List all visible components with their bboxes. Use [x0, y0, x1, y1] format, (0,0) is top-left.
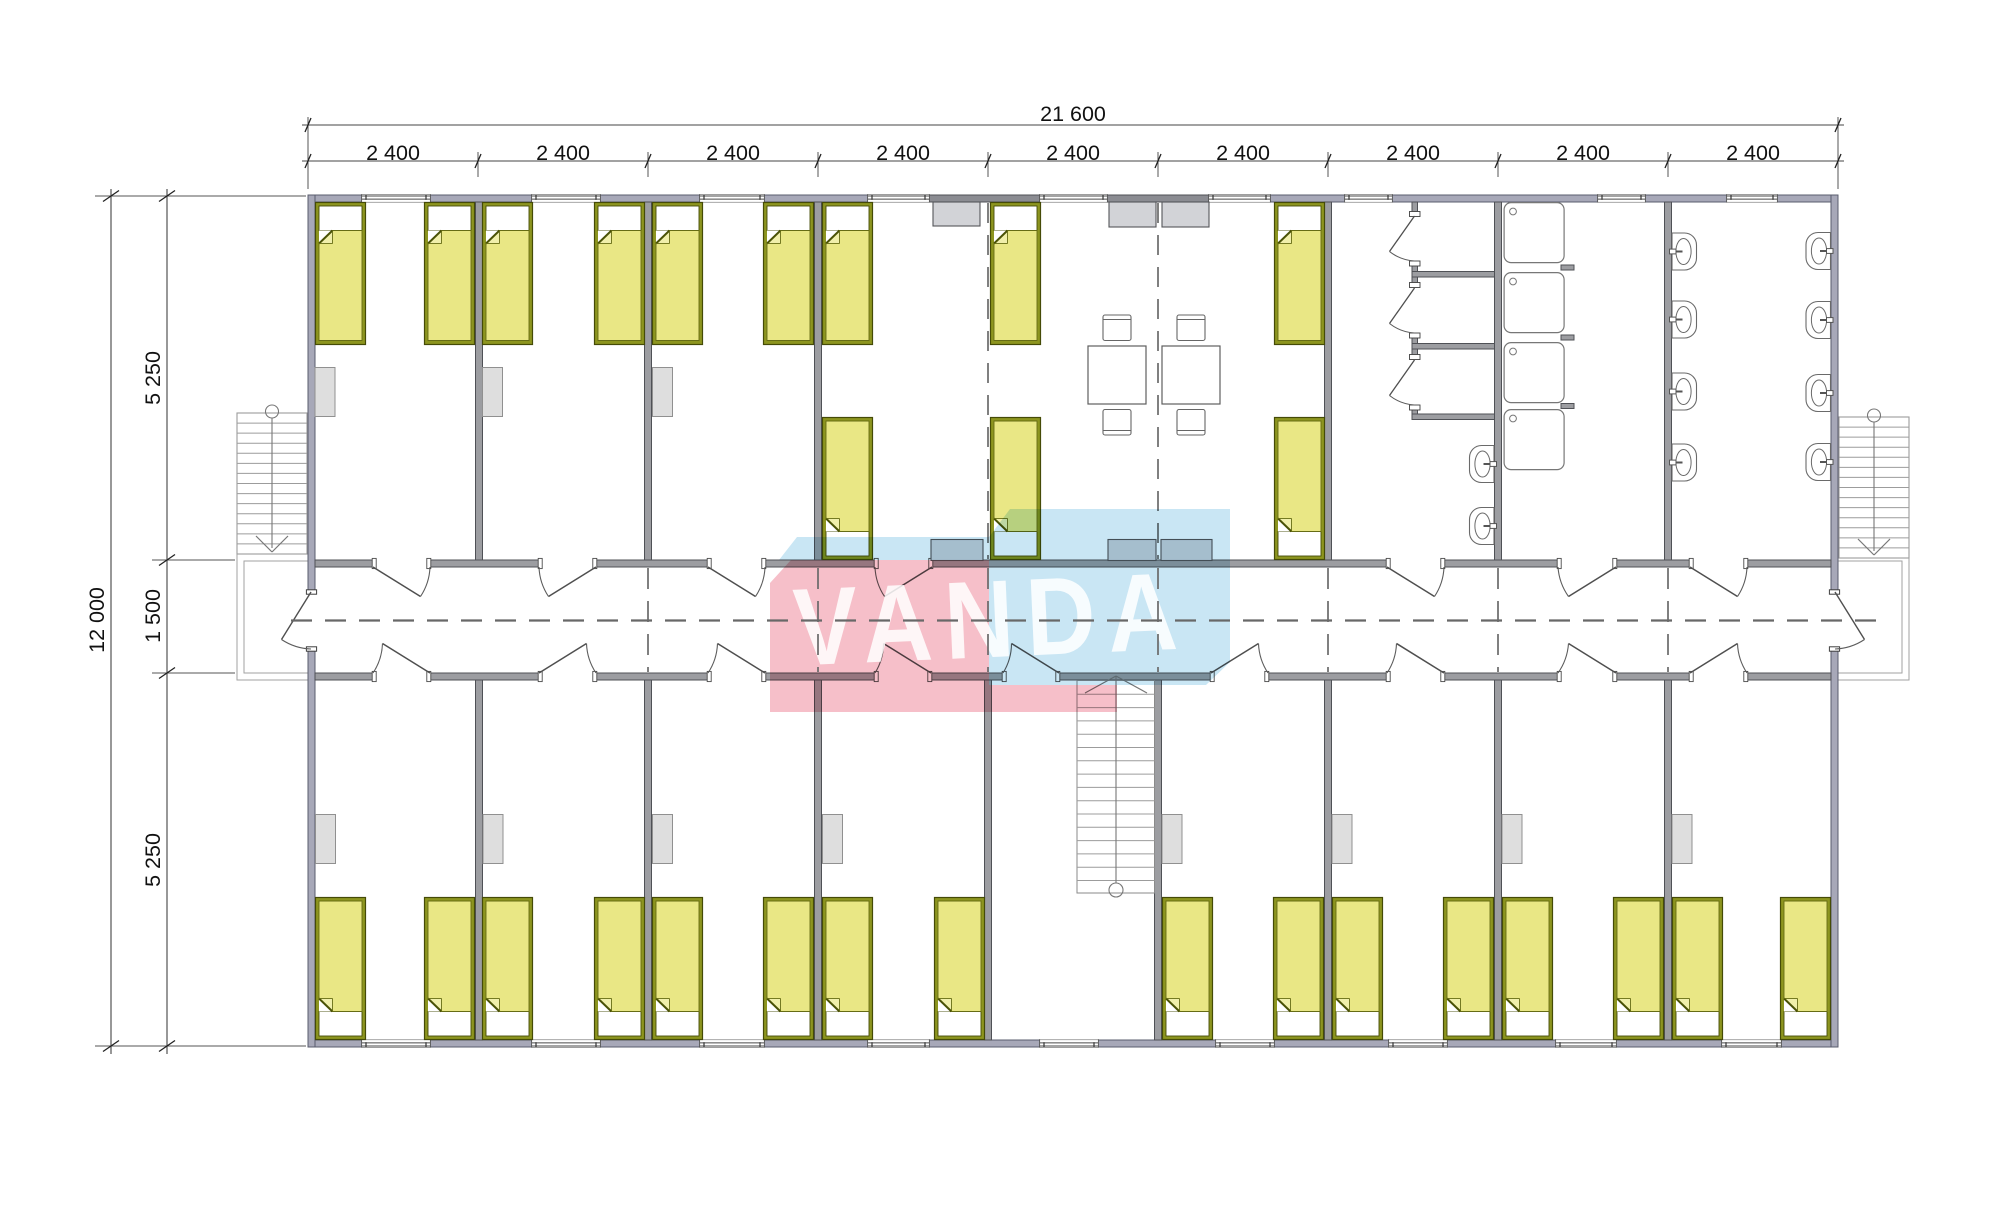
svg-text:2 400: 2 400 [1216, 141, 1270, 165]
svg-text:2 400: 2 400 [536, 141, 590, 165]
svg-text:2 400: 2 400 [1386, 141, 1440, 165]
svg-text:21 600: 21 600 [1040, 102, 1106, 126]
svg-text:5 250: 5 250 [141, 833, 165, 887]
svg-text:2 400: 2 400 [1726, 141, 1780, 165]
svg-text:5 250: 5 250 [141, 351, 165, 405]
svg-text:2 400: 2 400 [366, 141, 420, 165]
svg-text:12 000: 12 000 [85, 587, 109, 653]
svg-text:2 400: 2 400 [1556, 141, 1610, 165]
svg-text:2 400: 2 400 [1046, 141, 1100, 165]
svg-text:2 400: 2 400 [706, 141, 760, 165]
svg-text:1 500: 1 500 [141, 589, 165, 643]
svg-text:2 400: 2 400 [876, 141, 930, 165]
